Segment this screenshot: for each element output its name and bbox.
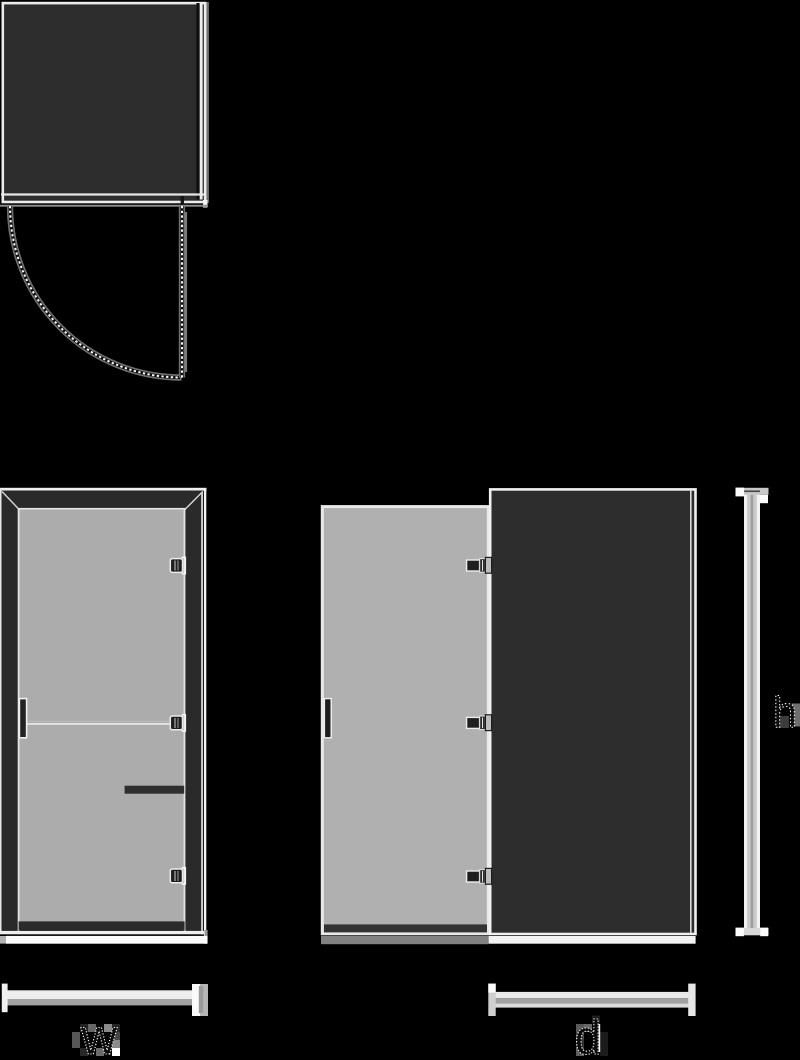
svg-text:w: w (80, 1009, 118, 1060)
svg-text:d: d (575, 1012, 602, 1060)
svg-text:h: h (773, 688, 797, 737)
